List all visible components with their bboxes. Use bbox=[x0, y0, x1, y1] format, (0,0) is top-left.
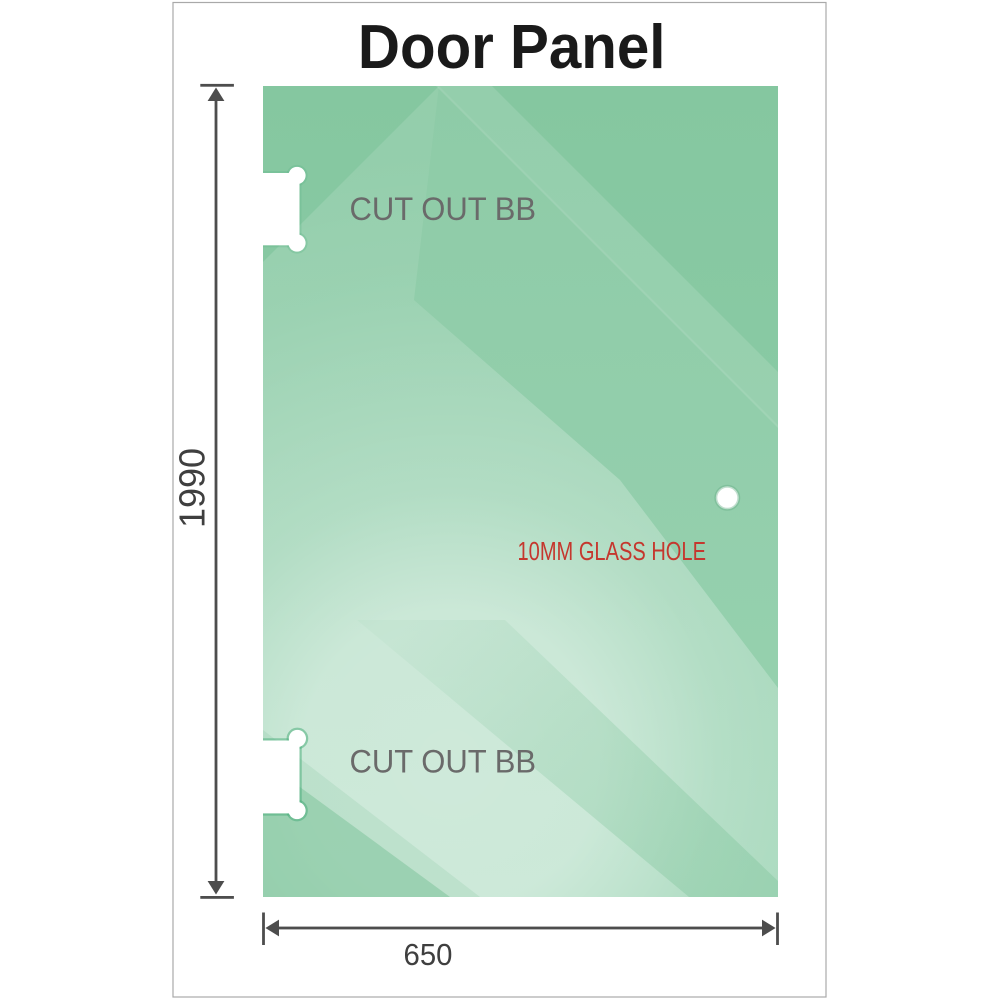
svg-text:1990: 1990 bbox=[172, 448, 213, 528]
svg-text:10MM GLASS HOLE: 10MM GLASS HOLE bbox=[518, 536, 706, 565]
svg-text:Door Panel: Door Panel bbox=[358, 12, 666, 81]
svg-text:CUT OUT BB: CUT OUT BB bbox=[349, 743, 536, 780]
svg-text:CUT OUT BB: CUT OUT BB bbox=[349, 191, 536, 228]
svg-text:650: 650 bbox=[404, 938, 453, 972]
